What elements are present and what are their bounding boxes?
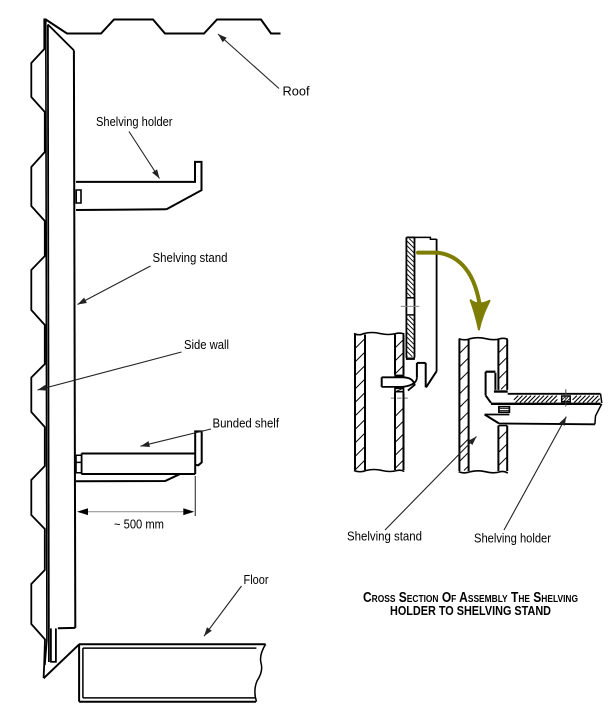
svg-text:Bunded shelf: Bunded shelf bbox=[213, 416, 280, 431]
svg-text:Roof: Roof bbox=[283, 84, 310, 99]
svg-text:Side wall: Side wall bbox=[184, 337, 229, 352]
svg-text:Shelving stand: Shelving stand bbox=[347, 529, 422, 544]
svg-text:Shelving stand: Shelving stand bbox=[153, 250, 228, 265]
svg-text:Floor: Floor bbox=[244, 572, 270, 587]
svg-text:Shelving holder: Shelving holder bbox=[96, 114, 173, 129]
svg-text:Shelving holder: Shelving holder bbox=[474, 531, 552, 546]
svg-text:~ 500 mm: ~ 500 mm bbox=[114, 517, 164, 532]
svg-text:HOLDER TO SHELVING STAND: HOLDER TO SHELVING STAND bbox=[390, 603, 551, 618]
